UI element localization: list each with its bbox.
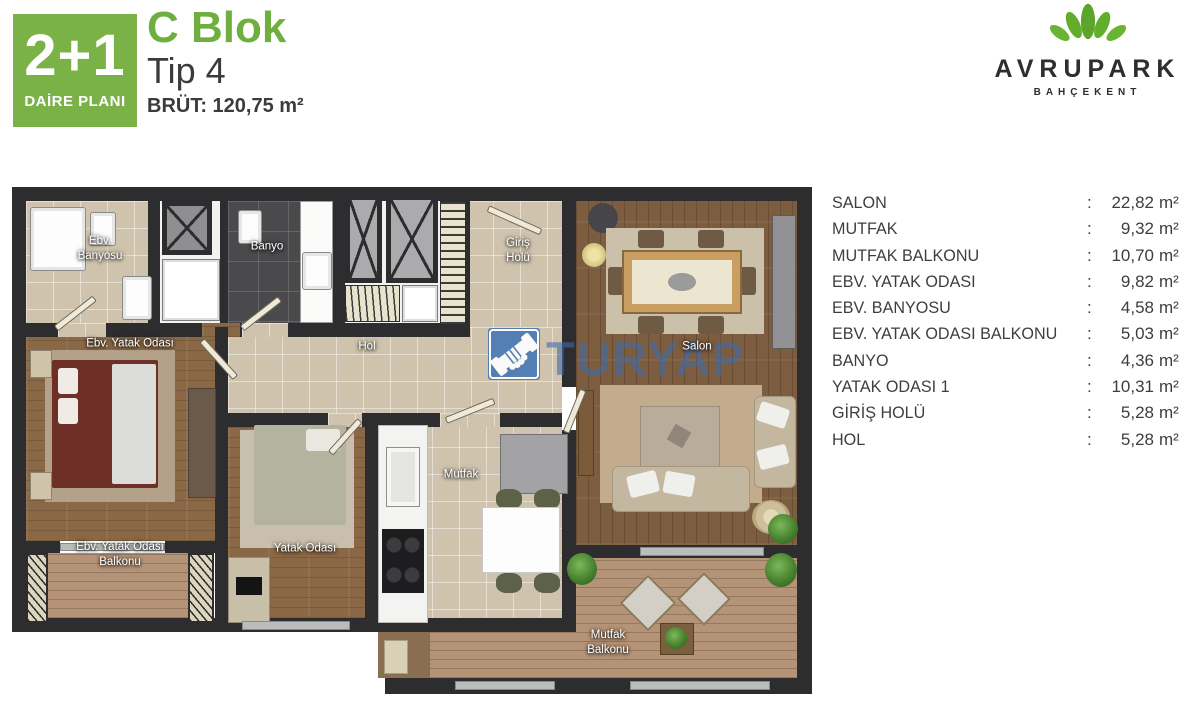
wall [26, 541, 60, 553]
handshake-icon [488, 328, 540, 380]
block-title: C Blok [147, 6, 304, 50]
legend-room-name: SALON [832, 193, 887, 213]
legend-row: YATAK ODASI 1:10,31m² [832, 374, 1177, 400]
fridge [500, 434, 568, 494]
legend-area-unit: m² [1159, 298, 1179, 318]
legend-area-unit: m² [1159, 430, 1179, 450]
legend-room-name: BANYO [832, 351, 889, 371]
floor-mutfak-balkonu [562, 558, 797, 678]
brand-name: AVRUPARK [980, 55, 1195, 84]
legend-row: HOL:5,28m² [832, 427, 1177, 453]
wall [333, 187, 345, 327]
legend-room-name: MUTFAK [832, 219, 898, 239]
wall [466, 201, 470, 327]
legend-area-unit: m² [1159, 324, 1179, 344]
legend-colon: : [1087, 377, 1092, 397]
legend-row: BANYO:4,36m² [832, 348, 1177, 374]
area-legend: SALON:22,82m²MUTFAK:9,32m²MUTFAK BALKONU… [832, 190, 1177, 453]
console-cabinet [772, 215, 796, 349]
floor-mutfak-balkonu-strip [430, 632, 562, 678]
wall [365, 413, 378, 620]
washing-machine [402, 285, 438, 322]
legend-room-name: GİRİŞ HOLÜ [832, 403, 925, 423]
serving-dish [668, 273, 696, 291]
balcony-railing [26, 553, 48, 623]
room-label-ebv-yatak-odasi-balkonu: Ebv. Yatak OdasıBalkonu [76, 540, 164, 570]
legend-area-unit: m² [1159, 351, 1179, 371]
room-label-ebv-yatak-odasi: Ebv. Yatak Odası [86, 337, 174, 352]
wardrobe-closet [345, 285, 400, 322]
legend-row: EBV. BANYOSU:4,58m² [832, 295, 1177, 321]
legend-area-value: 9,82 [1094, 272, 1154, 292]
room-label-salon: Salon [682, 340, 711, 355]
sink [302, 252, 332, 290]
legend-row: MUTFAK BALKONU:10,70m² [832, 243, 1177, 269]
chair [496, 489, 522, 509]
legend-colon: : [1087, 403, 1092, 423]
unit-type: Tip 4 [147, 50, 304, 91]
badge-room-count: 2+1 [13, 26, 137, 87]
legend-room-name: EBV. YATAK ODASI BALKONU [832, 324, 1057, 344]
room-label-yatak-odasi: Yatak Odası [274, 542, 336, 557]
legend-area-unit: m² [1159, 193, 1179, 213]
turyap-logo [488, 328, 540, 380]
plant [665, 627, 687, 649]
brand-logo: AVRUPARK BAHÇEKENT [980, 2, 1195, 98]
legend-area-value: 10,31 [1094, 377, 1154, 397]
window [640, 547, 764, 556]
legend-area-unit: m² [1159, 272, 1179, 292]
legend-area-value: 9,32 [1094, 219, 1154, 239]
plan-type-badge: 2+1 DAİRE PLANI [13, 14, 137, 127]
wall [220, 201, 228, 323]
window [455, 681, 555, 690]
elevator-icon [345, 195, 382, 283]
chair [534, 489, 560, 509]
plant [765, 553, 797, 587]
legend-room-name: EBV. BANYOSU [832, 298, 951, 318]
chair [638, 230, 664, 248]
legend-room-name: EBV. YATAK ODASI [832, 272, 976, 292]
legend-row: GİRİŞ HOLÜ:5,28m² [832, 400, 1177, 426]
elevator-icon [386, 195, 438, 283]
shaft-icon [162, 201, 212, 255]
chair [698, 230, 724, 248]
legend-area-value: 5,03 [1094, 324, 1154, 344]
wall [12, 187, 26, 632]
floor-plan: TURYAP Ebv.BanyosuBanyoGirişHolüEbv. Yat… [10, 185, 812, 697]
kitchen-sink [386, 447, 420, 507]
lotus-leaves-icon [1033, 2, 1143, 48]
stove [382, 529, 424, 593]
legend-colon: : [1087, 193, 1092, 213]
legend-room-name: MUTFAK BALKONU [832, 246, 979, 266]
stairs [440, 201, 466, 325]
legend-area-unit: m² [1159, 246, 1179, 266]
lamp [582, 243, 606, 267]
legend-colon: : [1087, 219, 1092, 239]
legend-colon: : [1087, 246, 1092, 266]
washing-machine [162, 259, 220, 321]
legend-area-value: 4,36 [1094, 351, 1154, 371]
legend-colon: : [1087, 430, 1092, 450]
legend-area-value: 4,58 [1094, 298, 1154, 318]
pillow [58, 368, 78, 394]
sink [122, 276, 152, 320]
page: { "header": { "badge": { "line1": "2+1",… [0, 0, 1200, 708]
doormat [384, 640, 408, 674]
legend-row: MUTFAK:9,32m² [832, 216, 1177, 242]
chair [740, 267, 756, 295]
duvet [112, 364, 156, 484]
plant [567, 553, 597, 585]
legend-row: EBV. YATAK ODASI BALKONU:5,03m² [832, 321, 1177, 347]
legend-colon: : [1087, 324, 1092, 344]
wall [165, 541, 215, 553]
tv [236, 577, 262, 595]
legend-area-value: 5,28 [1094, 403, 1154, 423]
window [242, 621, 350, 630]
window [630, 681, 770, 690]
legend-area-value: 5,28 [1094, 430, 1154, 450]
turyap-watermark-text: TURYAP [546, 331, 745, 386]
legend-area-value: 22,82 [1094, 193, 1154, 213]
legend-colon: : [1087, 351, 1092, 371]
title-block: C Blok Tip 4 BRÜT: 120,75 m² [147, 6, 304, 118]
nightstand [30, 350, 52, 378]
plant [768, 514, 798, 544]
wall [797, 187, 812, 694]
room-label-ebv-banyosu: Ebv.Banyosu [78, 234, 123, 264]
kitchen-table [482, 507, 560, 573]
legend-room-name: YATAK ODASI 1 [832, 377, 950, 397]
gross-area: BRÜT: 120,75 m² [147, 95, 304, 118]
brand-subtitle: BAHÇEKENT [980, 87, 1195, 98]
chair [534, 573, 560, 593]
room-label-mutfak: Mutfak [444, 468, 479, 483]
legend-row: EBV. YATAK ODASI:9,82m² [832, 269, 1177, 295]
pillow [58, 398, 78, 424]
room-label-banyo: Banyo [251, 240, 284, 255]
room-label-mutfak-balkonu: MutfakBalkonu [587, 628, 629, 658]
chair [496, 573, 522, 593]
room-label-giris-holu: GirişHolü [506, 236, 530, 266]
legend-area-unit: m² [1159, 377, 1179, 397]
legend-area-unit: m² [1159, 219, 1179, 239]
legend-colon: : [1087, 298, 1092, 318]
room-label-hol: Hol [358, 340, 375, 355]
legend-colon: : [1087, 272, 1092, 292]
badge-caption: DAİRE PLANI [13, 93, 137, 110]
nightstand [30, 472, 52, 500]
legend-row: SALON:22,82m² [832, 190, 1177, 216]
legend-room-name: HOL [832, 430, 865, 450]
legend-area-value: 10,70 [1094, 246, 1154, 266]
wardrobe [188, 388, 216, 498]
legend-area-unit: m² [1159, 403, 1179, 423]
balcony-railing [188, 553, 214, 623]
